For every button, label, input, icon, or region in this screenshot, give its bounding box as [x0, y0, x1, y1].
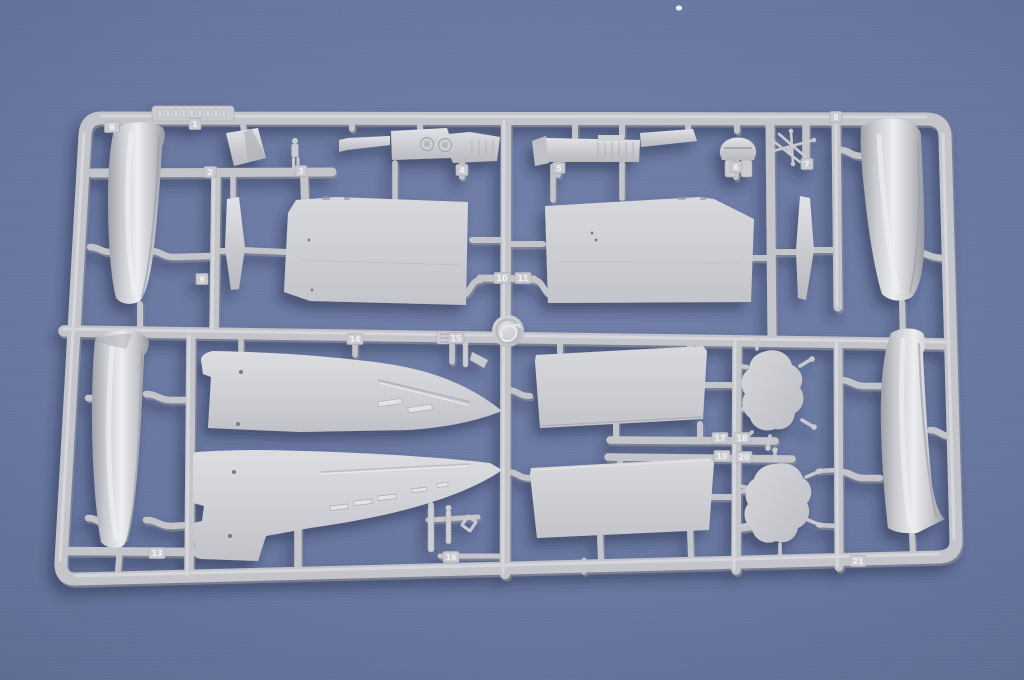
tag-label: 7: [804, 160, 810, 169]
tag-label: 3: [298, 167, 304, 176]
part-number-tag-3: 3: [295, 166, 307, 177]
part-number-tag-16: 16: [443, 552, 459, 563]
part-number-tag-13: 13: [149, 548, 165, 559]
tag-label: 8: [833, 113, 839, 122]
part-number-tag-10: 10: [494, 273, 510, 284]
part-number-tag-20: 20: [736, 452, 752, 463]
tag-label: 19: [716, 452, 728, 461]
tag-label: 17: [714, 434, 725, 443]
tag-label: 5: [556, 164, 562, 173]
part-number-tag-21: 21: [850, 556, 866, 567]
part-number-tag-15: 15: [448, 333, 464, 344]
tag-label: 16: [445, 553, 457, 562]
tag-label: 10: [496, 274, 508, 283]
part-number-tag-11: 11: [515, 273, 531, 284]
tag-label: 6: [733, 163, 739, 172]
part-number-tag-19: 19: [714, 451, 730, 462]
part-number-tag-2: 2: [204, 167, 216, 178]
part-number-tag-4: 4: [456, 165, 468, 176]
intake-side-panel-lower: [530, 458, 714, 538]
tag-label: 2: [207, 168, 213, 177]
part-number-tag-9: 9: [196, 274, 208, 285]
photo-stage: B1234567891011131415161718192021: [0, 0, 1024, 680]
tag-label: 1: [192, 120, 198, 129]
part-number-tag-6: 6: [730, 162, 742, 173]
part-number-tag-8: 8: [830, 112, 842, 123]
tag-label: 11: [517, 274, 529, 283]
tag-label: 15: [450, 334, 462, 343]
part-number-tag-17: 17: [712, 433, 728, 444]
part-number-tag-14: 14: [347, 334, 363, 345]
tag-label: B: [109, 123, 115, 132]
tag-label: 9: [199, 275, 205, 284]
part-number-tag-B: B: [105, 122, 120, 133]
part-number-tag-1: 1: [189, 119, 201, 130]
tag-label: 13: [151, 549, 162, 558]
tag-label: 4: [459, 166, 465, 175]
tag-label: 21: [852, 557, 864, 566]
logo-medallion: [492, 315, 524, 347]
part-number-tag-7: 7: [801, 159, 813, 170]
part-number-tag-5: 5: [553, 163, 565, 174]
intake-side-panel-upper: [535, 346, 707, 428]
fuselage-panel-upper-right: [545, 196, 754, 303]
tag-label: 18: [736, 434, 748, 443]
part-number-tag-18: 18: [734, 433, 750, 444]
dust-speck: [676, 5, 682, 10]
tag-label: 14: [349, 335, 361, 344]
fuselage-panel-upper-left: [284, 196, 468, 305]
sprue-photo: B1234567891011131415161718192021: [0, 0, 1024, 680]
tag-label: 20: [738, 453, 750, 462]
